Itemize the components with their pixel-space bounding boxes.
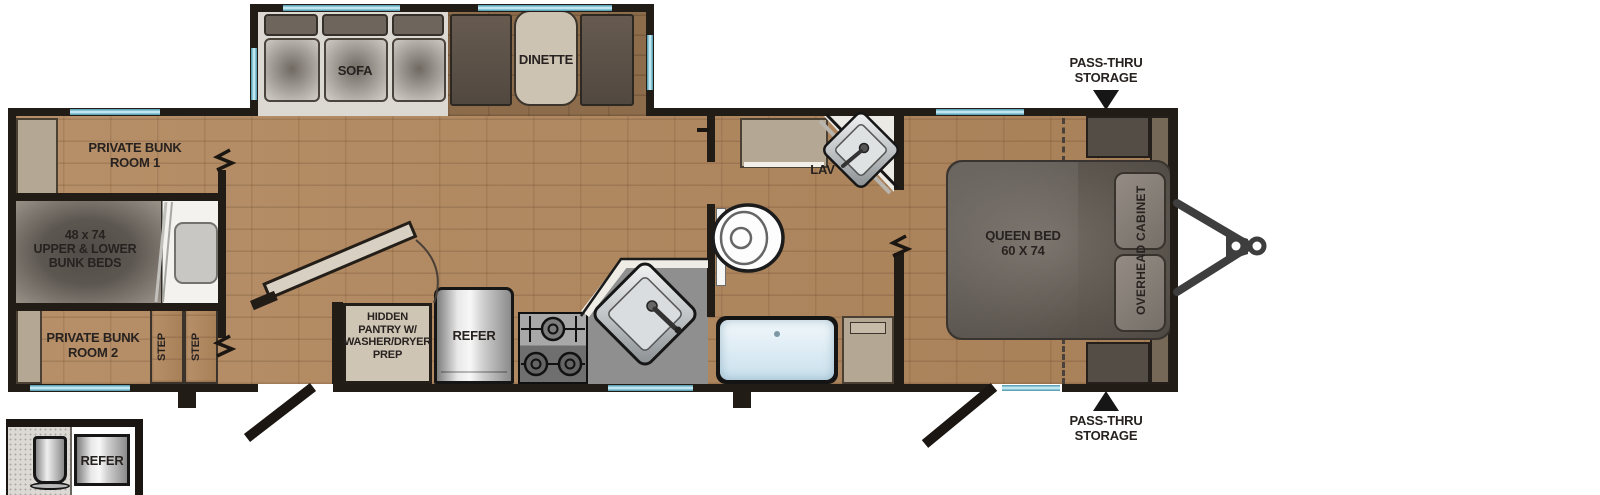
window — [936, 109, 1024, 115]
bunk-seat — [174, 222, 218, 284]
wall-bunkroom1 — [8, 193, 226, 201]
inset-washer-base — [30, 482, 70, 490]
door-hinge-stub-mid — [733, 392, 751, 408]
refrigerator-trim — [441, 371, 507, 373]
pass-thru-storage-top-label: PASS-THRUSTORAGE — [1040, 55, 1172, 85]
floorplan-canvas: REFER SOFA DINETTE PRIVATE BUNKROOM 1 48… — [0, 0, 1600, 495]
inset-washer — [33, 436, 67, 484]
inset-refer-label: REFER — [80, 453, 123, 468]
window — [478, 5, 612, 11]
bath-door-panel — [716, 208, 726, 286]
entry-door-open-rear — [247, 387, 313, 438]
stove — [518, 312, 588, 384]
sofa-back-cushion — [264, 14, 318, 36]
hitch-a-frame — [1177, 203, 1264, 292]
wall-bunk-vertical — [218, 170, 226, 338]
door-hinge-stub-rear — [178, 392, 196, 408]
lav-label: LAV — [780, 162, 865, 177]
window — [283, 5, 400, 11]
refer-label: REFER — [434, 328, 514, 343]
option-inset-box: REFER — [6, 419, 143, 495]
bunk-beds-label: 48 x 74 UPPER & LOWER BUNK BEDS — [10, 228, 160, 270]
sofa-label: SOFA — [300, 63, 410, 78]
pass-thru-arrow-up-icon — [1093, 391, 1119, 411]
window — [70, 109, 160, 115]
wall-bunkroom2 — [8, 303, 226, 311]
lav-cabinet — [740, 118, 828, 168]
inset-refer: REFER — [74, 434, 130, 486]
window — [251, 48, 257, 100]
dinette-label: DINETTE — [491, 52, 601, 67]
hitch-ring — [1250, 239, 1264, 253]
passthru-divider-dashed — [1062, 338, 1065, 384]
hitch-coupler — [1226, 232, 1248, 261]
queen-bed-label: QUEEN BED60 X 74 — [938, 228, 1108, 258]
bathtub-basin — [720, 320, 834, 380]
pass-thru-arrow-down-icon — [1093, 90, 1119, 110]
window — [608, 385, 693, 391]
bath-vanity-detail — [850, 322, 886, 334]
window — [30, 385, 130, 391]
wall-front — [1170, 108, 1178, 392]
entry-door-open-front — [925, 387, 994, 444]
wall-bath-mid — [707, 204, 715, 317]
bathtub-drain — [774, 331, 780, 337]
pantry-label: HIDDEN PANTRY W/ WASHER/DRYER PREP — [343, 311, 432, 361]
overhead-cabinet-label: OVERHEAD CABINET — [1128, 165, 1154, 335]
bunk-room-1-label: PRIVATE BUNKROOM 1 — [50, 140, 220, 170]
passthru-divider-dashed — [1062, 118, 1065, 162]
wall-bottom-right — [1062, 384, 1178, 392]
bathtub — [716, 316, 838, 384]
step-2-label: STEP — [190, 316, 212, 378]
sofa-back-cushion — [322, 14, 388, 36]
bath-vanity — [842, 316, 894, 384]
wall-pantry-stub — [332, 302, 343, 384]
wall-bedroom-bottom — [894, 253, 904, 384]
sofa-back-cushion — [392, 14, 444, 36]
wardrobe-top — [1086, 116, 1150, 158]
step-1-label: STEP — [156, 316, 178, 378]
wardrobe-bottom — [1086, 342, 1150, 384]
bunk-room-2-label: PRIVATE BUNKROOM 2 — [18, 330, 168, 360]
window — [647, 35, 653, 90]
wall-bedroom-top — [894, 116, 904, 190]
wall-bath-top — [707, 116, 715, 162]
pass-thru-storage-bottom-label: PASS-THRUSTORAGE — [1040, 413, 1172, 443]
entry-door-screen — [1002, 385, 1060, 391]
